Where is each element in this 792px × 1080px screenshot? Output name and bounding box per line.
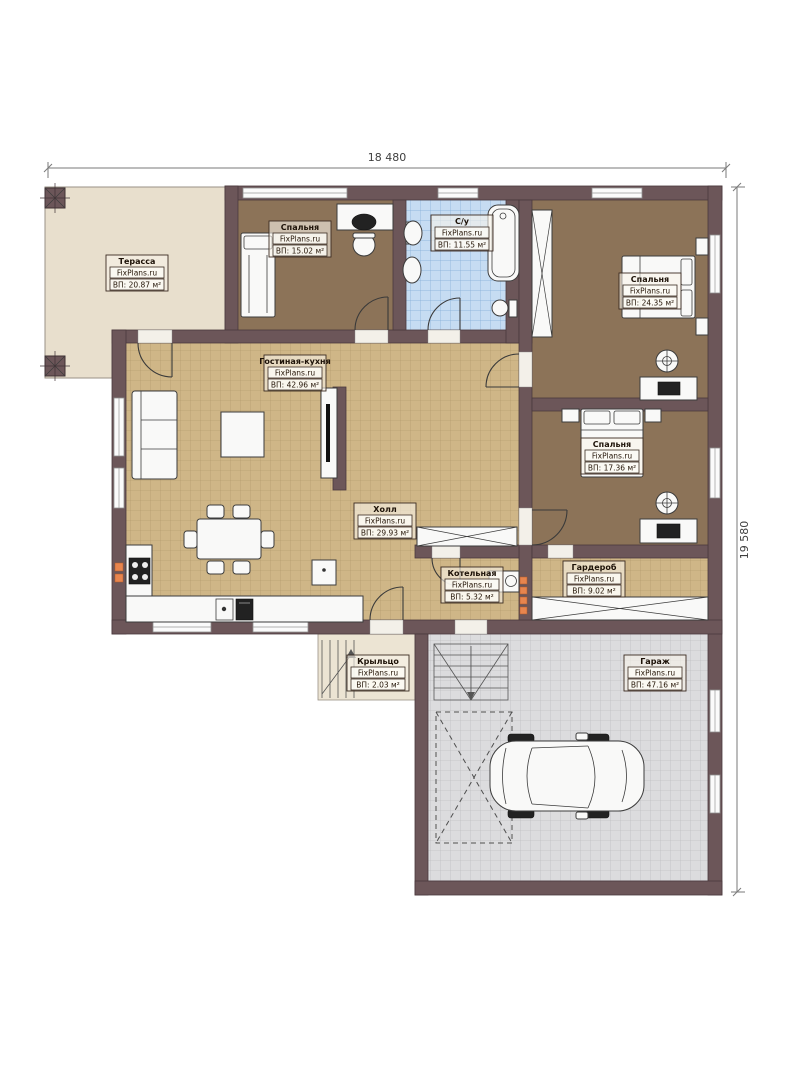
room-label-garage: Гараж FixPlans.ru ВП: 47.16 м²: [624, 655, 686, 691]
svg-text:FixPlans.ru: FixPlans.ru: [117, 269, 158, 278]
plant-icon: [656, 350, 678, 372]
svg-text:ВП: 29.93 м²: ВП: 29.93 м²: [361, 529, 409, 538]
window-icon: [710, 235, 720, 293]
svg-text:Крыльцо: Крыльцо: [357, 657, 399, 666]
nightstand-icon: [645, 409, 661, 422]
svg-text:ВП: 47.16 м²: ВП: 47.16 м²: [631, 681, 679, 690]
svg-text:Гостиная-кухня: Гостиная-кухня: [259, 357, 330, 366]
desk-icon: [640, 519, 697, 543]
svg-text:FixPlans.ru: FixPlans.ru: [592, 452, 633, 461]
svg-text:Гараж: Гараж: [640, 657, 670, 666]
window-icon: [710, 775, 720, 813]
bidet-icon: [403, 257, 421, 283]
svg-text:FixPlans.ru: FixPlans.ru: [275, 369, 316, 378]
plant-icon: [656, 492, 678, 514]
terrace-column-icon: [40, 183, 70, 213]
svg-text:ВП: 9.02 м²: ВП: 9.02 м²: [572, 587, 615, 596]
wardrobe-icon: [532, 210, 552, 337]
svg-text:ВП: 20.87 м²: ВП: 20.87 м²: [113, 281, 161, 290]
nightstand-icon: [562, 409, 579, 422]
svg-text:Холл: Холл: [373, 505, 397, 514]
room-label-porch: Крыльцо FixPlans.ru ВП: 2.03 м²: [347, 655, 409, 691]
room-label-bedroom3: Спальня FixPlans.ru ВП: 17.36 м²: [581, 438, 643, 474]
dimension-top: 18 480: [44, 151, 730, 178]
window-icon: [592, 188, 642, 198]
svg-text:ВП: 2.03 м²: ВП: 2.03 м²: [356, 681, 399, 690]
terrace-column-icon: [40, 351, 70, 381]
window-icon: [438, 188, 478, 198]
nightstand-icon: [696, 318, 708, 335]
svg-text:ВП: 11.55 м²: ВП: 11.55 м²: [438, 241, 486, 250]
svg-text:19 580: 19 580: [738, 521, 751, 560]
room-label-terrace: Терасса FixPlans.ru ВП: 20.87 м²: [106, 255, 168, 291]
room-label-boiler: Котельная FixPlans.ru ВП: 5.32 м²: [441, 567, 503, 603]
room-label-bedroom2: Спальня FixPlans.ru ВП: 24.35 м²: [619, 273, 681, 309]
svg-text:С/у: С/у: [455, 217, 470, 226]
svg-text:18 480: 18 480: [368, 151, 407, 164]
coffee-table-icon: [221, 412, 264, 457]
svg-text:Спальня: Спальня: [593, 440, 631, 449]
dimension-right: 19 580: [731, 183, 751, 896]
svg-text:FixPlans.ru: FixPlans.ru: [358, 669, 399, 678]
svg-text:ВП: 15.02 м²: ВП: 15.02 м²: [276, 247, 324, 256]
room-label-hall: Холл FixPlans.ru ВП: 29.93 м²: [354, 503, 416, 539]
svg-text:ВП: 17.36 м²: ВП: 17.36 м²: [588, 464, 636, 473]
svg-text:ВП: 42.96 м²: ВП: 42.96 м²: [271, 381, 319, 390]
desk-icon: [640, 377, 697, 400]
window-icon: [153, 622, 211, 632]
svg-text:ВП: 24.35 м²: ВП: 24.35 м²: [626, 299, 674, 308]
svg-text:FixPlans.ru: FixPlans.ru: [630, 287, 671, 296]
svg-text:FixPlans.ru: FixPlans.ru: [365, 517, 406, 526]
svg-text:FixPlans.ru: FixPlans.ru: [635, 669, 676, 678]
svg-text:Котельная: Котельная: [447, 569, 496, 578]
svg-text:FixPlans.ru: FixPlans.ru: [452, 581, 493, 590]
svg-text:Гардероб: Гардероб: [572, 562, 617, 572]
sofa-icon: [132, 391, 177, 479]
closet-icon: [417, 527, 517, 546]
room-label-wardrobe: Гардероб FixPlans.ru ВП: 9.02 м²: [563, 561, 625, 597]
window-icon: [243, 188, 347, 198]
room-label-bathroom: С/у FixPlans.ru ВП: 11.55 м²: [431, 215, 493, 251]
svg-text:FixPlans.ru: FixPlans.ru: [574, 575, 615, 584]
toilet-icon: [492, 300, 517, 317]
svg-text:Спальня: Спальня: [281, 223, 319, 232]
svg-text:Терасса: Терасса: [119, 257, 156, 266]
window-icon: [253, 622, 308, 632]
svg-text:Спальня: Спальня: [631, 275, 669, 284]
window-icon: [710, 448, 720, 498]
window-icon: [710, 690, 720, 732]
svg-text:FixPlans.ru: FixPlans.ru: [442, 229, 483, 238]
window-icon: [114, 468, 124, 508]
tv-unit-icon: [321, 388, 337, 478]
nightstand-icon: [696, 238, 708, 255]
room-label-living: Гостиная-кухня FixPlans.ru ВП: 42.96 м²: [259, 355, 330, 391]
room-label-bedroom1: Спальня FixPlans.ru ВП: 15.02 м²: [269, 221, 331, 257]
sink-icon: [404, 221, 422, 245]
closet-icon: [532, 597, 708, 620]
svg-text:ВП: 5.32 м²: ВП: 5.32 м²: [450, 593, 493, 602]
car-icon: [490, 733, 644, 819]
floor-plan-page: Терасса FixPlans.ru ВП: 20.87 м² Спальня…: [0, 0, 792, 1080]
svg-text:FixPlans.ru: FixPlans.ru: [280, 235, 321, 244]
window-icon: [114, 398, 124, 456]
floor-plan-canvas: Терасса FixPlans.ru ВП: 20.87 м² Спальня…: [0, 0, 792, 1080]
